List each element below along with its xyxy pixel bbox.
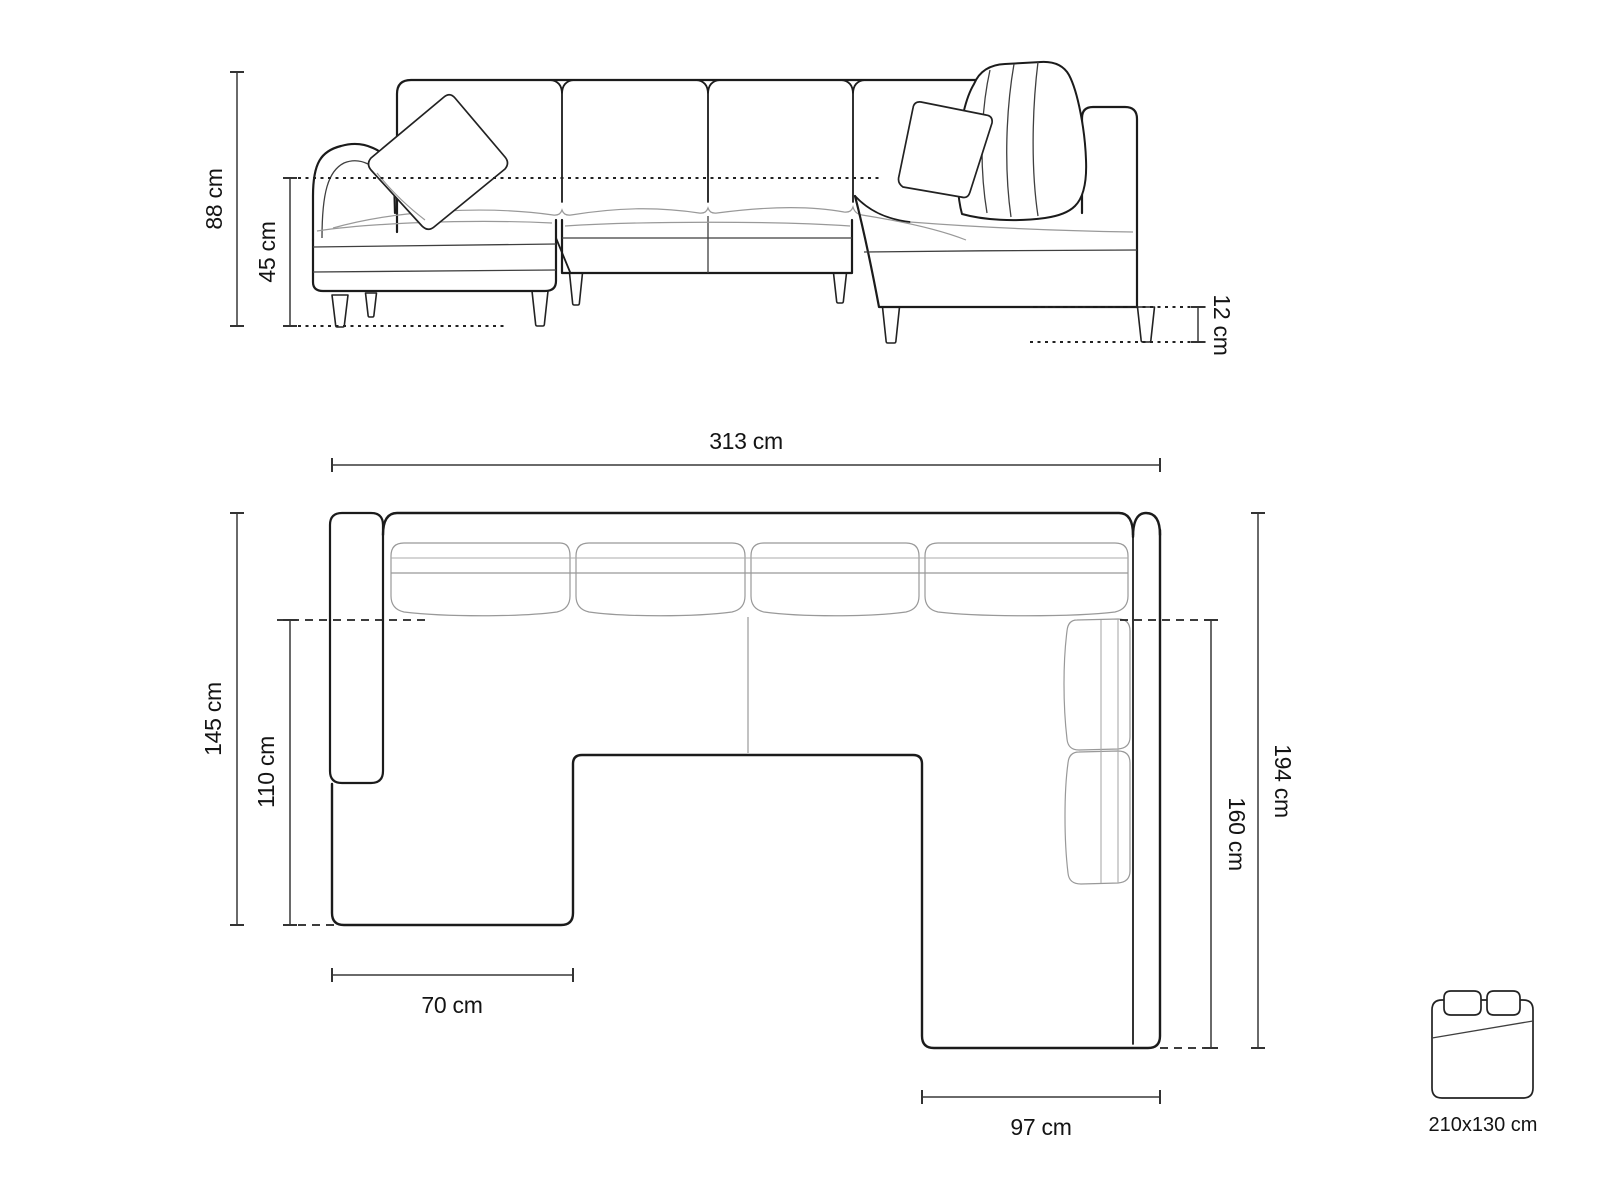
dim-seat-height: 45 cm (254, 178, 297, 326)
sleeping-area: 210x130 cm (1429, 991, 1538, 1136)
plan-sofa-drawing (330, 513, 1160, 1048)
chaise-seam-2 (313, 270, 556, 272)
right-block-seam (864, 250, 1137, 252)
leg-right-outer (1138, 307, 1155, 342)
bed-pillow-right-icon (1487, 991, 1520, 1015)
plan-left-arm (330, 513, 383, 783)
right-arm (1082, 107, 1137, 307)
dim-label-right-width: 97 cm (1010, 1114, 1071, 1140)
diagram-canvas: 88 cm 45 cm 12 cm (0, 0, 1600, 1200)
plan-back-cushion-3 (751, 543, 919, 616)
sleeping-area-label: 210x130 cm (1429, 1114, 1538, 1136)
plan-right-cushion-2 (1065, 751, 1130, 884)
right-block-top-edge (910, 222, 1133, 232)
middle-block (562, 220, 852, 273)
dim-label-total-width: 313 cm (709, 428, 783, 454)
leg-chaise-rear (366, 293, 377, 317)
leg-chaise-right (532, 291, 548, 326)
dim-right-depth: 194 cm (1251, 513, 1296, 1048)
leg-right-front (883, 307, 900, 343)
chaise-seam-1 (313, 244, 556, 247)
dim-label-total-height: 88 cm (201, 168, 227, 229)
dim-label-left-inner-depth: 110 cm (253, 736, 279, 808)
dim-total-height: 88 cm (201, 72, 244, 326)
plan-right-cushion-1 (1064, 619, 1130, 750)
sofa-dimension-diagram: 88 cm 45 cm 12 cm (0, 0, 1600, 1200)
plan-footprint-outline (332, 530, 1160, 1048)
front-view: 88 cm 45 cm 12 cm (201, 62, 1235, 356)
dim-label-chaise-width: 70 cm (421, 992, 482, 1018)
dim-label-left-depth: 145 cm (200, 682, 226, 756)
dim-label-right-inner-depth: 160 cm (1224, 797, 1250, 871)
leg-chaise-front (332, 295, 348, 327)
dim-left-inner-depth: 110 cm (253, 620, 297, 925)
leg-middle-right (834, 273, 847, 303)
dim-label-leg-height: 12 cm (1209, 294, 1235, 355)
dim-chaise-width: 70 cm (332, 968, 573, 1018)
plan-back-cushion-4 (925, 543, 1128, 616)
plan-back-cushion-1 (391, 543, 570, 616)
plan-right-arm-top (1133, 513, 1160, 537)
plan-back-top-edge (383, 513, 1133, 535)
dim-total-width: 313 cm (332, 428, 1160, 472)
dim-label-seat-height: 45 cm (254, 221, 280, 282)
backrest-separator-3 (841, 80, 865, 202)
dim-right-width: 97 cm (922, 1090, 1160, 1140)
dim-label-right-depth: 194 cm (1270, 744, 1296, 818)
plan-view: 313 cm 145 cm 110 cm 70 cm 97 cm (200, 428, 1296, 1140)
chaise-block (313, 220, 556, 291)
backrest-separator-1 (550, 80, 574, 202)
left-throw-pillow (369, 95, 508, 230)
dim-left-depth: 145 cm (200, 513, 244, 925)
front-sofa-drawing (313, 62, 1155, 343)
plan-back-cushion-2 (576, 543, 745, 616)
dim-leg-height: 12 cm (1191, 294, 1235, 355)
dim-right-inner-depth: 160 cm (1204, 620, 1250, 1048)
backrest-separator-2 (696, 80, 720, 202)
bed-pillow-left-icon (1444, 991, 1481, 1015)
leg-middle-left (570, 273, 583, 305)
